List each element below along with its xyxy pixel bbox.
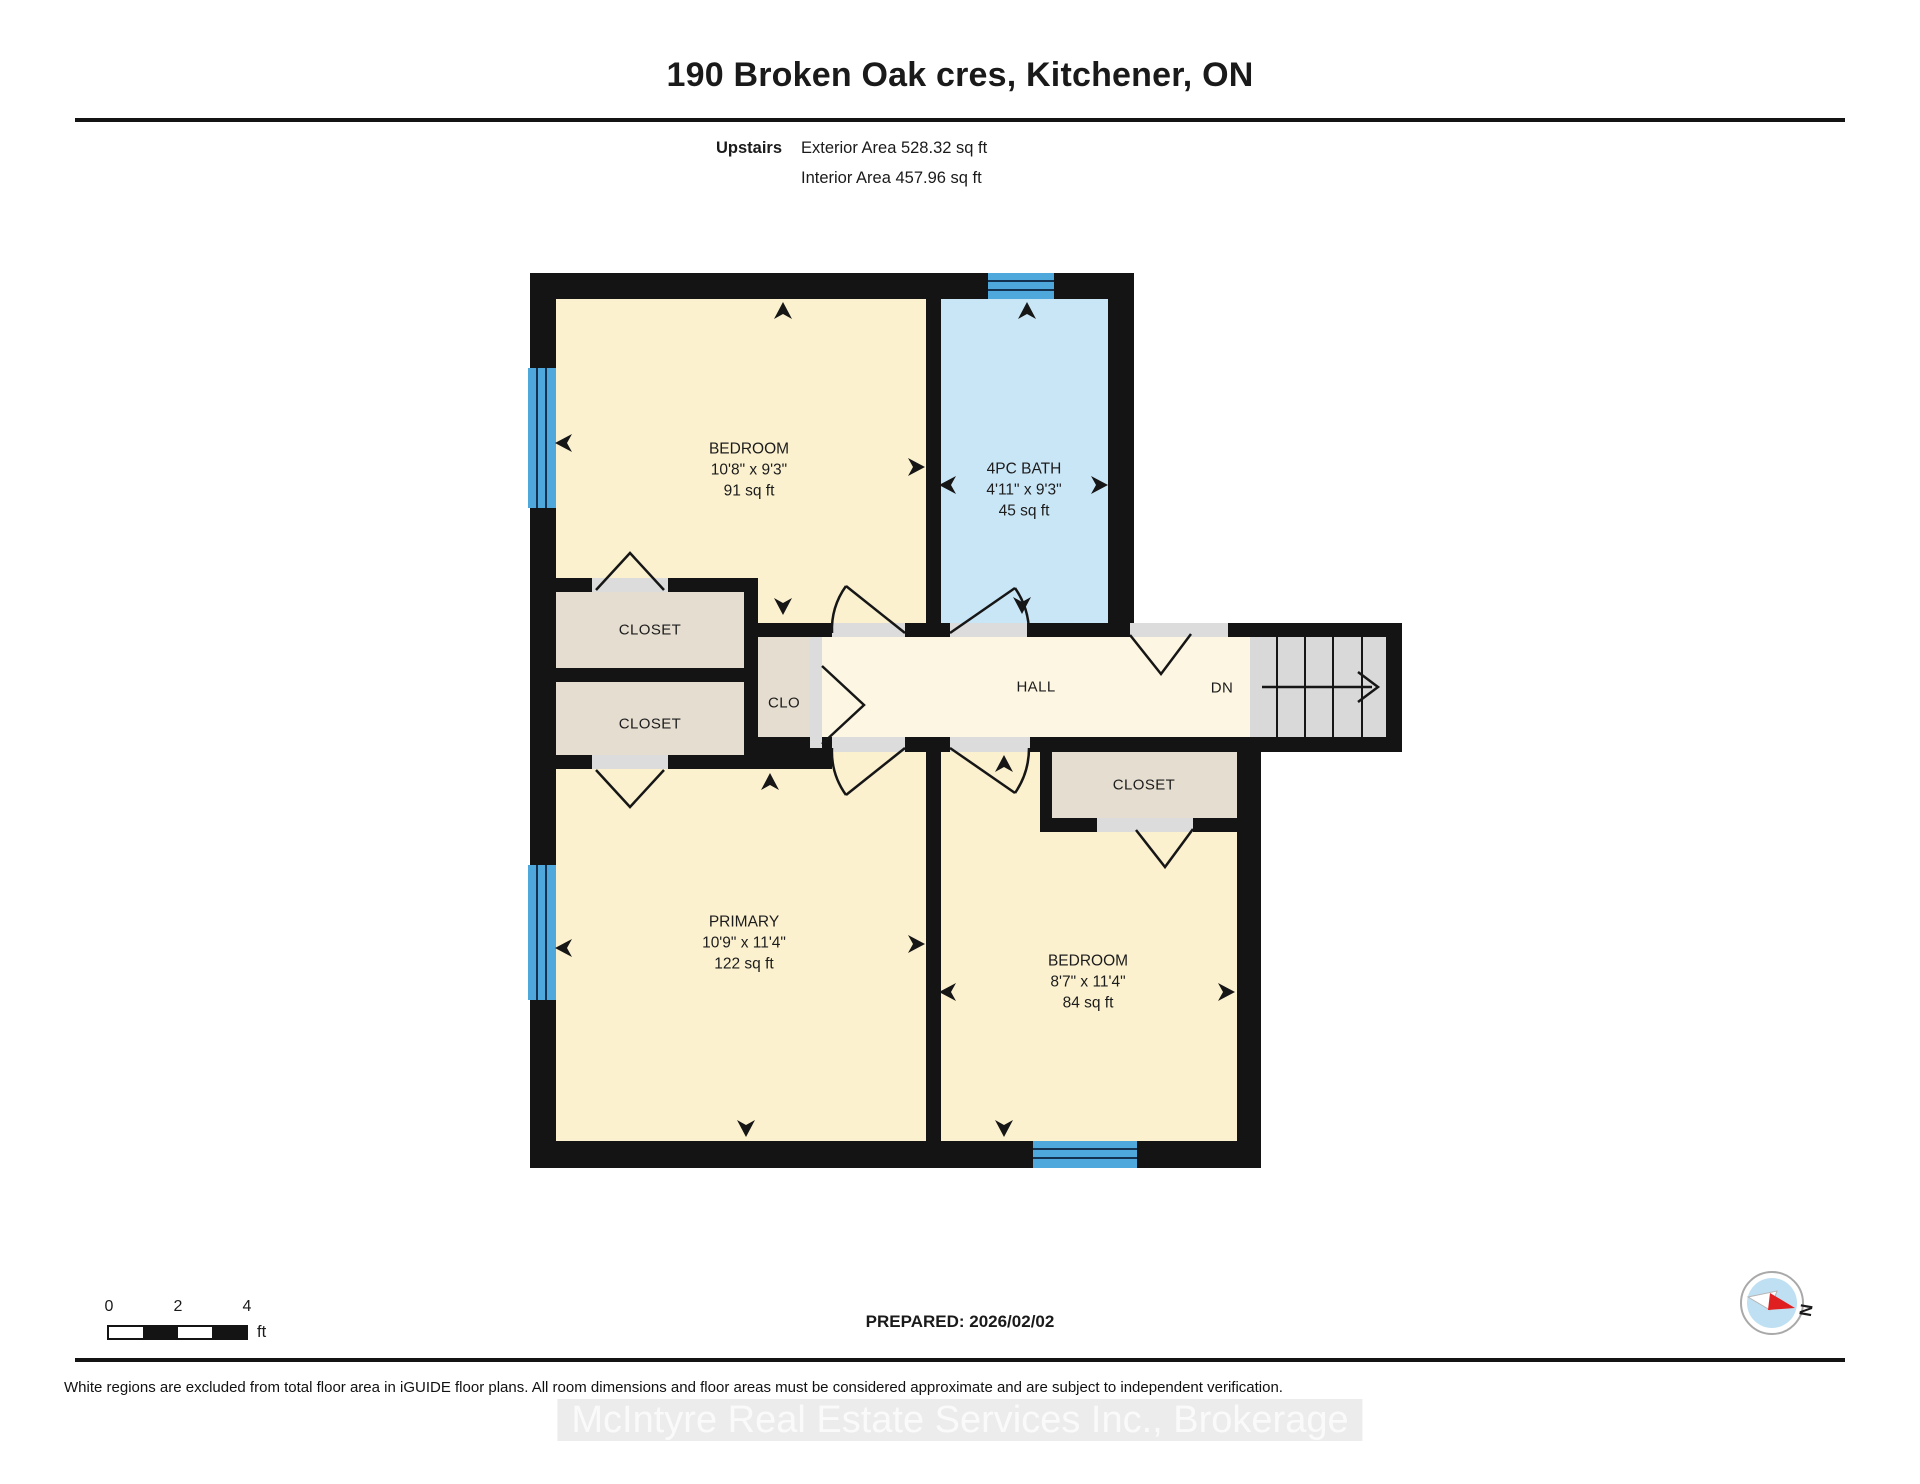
bedroom2-label: BEDROOM 8'7" x 11'4" 84 sq ft — [1048, 951, 1128, 1014]
disclaimer-text: White regions are excluded from total fl… — [64, 1379, 1283, 1396]
room-name: CLO — [768, 695, 800, 712]
door-opening — [950, 623, 1027, 637]
wall-segment — [530, 755, 592, 769]
window-primary — [528, 865, 556, 1000]
primary-label: PRIMARY 10'9" x 11'4" 122 sq ft — [702, 912, 786, 975]
door-opening — [1130, 623, 1228, 637]
window-bedroom2 — [1033, 1141, 1137, 1168]
room-name: PRIMARY — [702, 912, 786, 933]
room-name: BEDROOM — [1048, 951, 1128, 972]
clo-label: CLO — [768, 693, 800, 714]
stairs-dn-label: DN — [1211, 678, 1233, 699]
door-opening — [832, 737, 905, 752]
footer-divider — [75, 1358, 1845, 1362]
wall-segment — [1237, 737, 1261, 1168]
door-opening — [1097, 818, 1193, 832]
wall-segment — [1193, 818, 1237, 832]
room-name: HALL — [1016, 679, 1055, 696]
hall-label: HALL — [1016, 677, 1055, 698]
wall-segment — [556, 668, 744, 682]
room-name: CLOSET — [619, 622, 681, 639]
wall-segment — [926, 299, 941, 637]
bedroom1-label: BEDROOM 10'8" x 9'3" 91 sq ft — [709, 439, 789, 502]
wall-segment — [1228, 623, 1402, 637]
room-area: 84 sq ft — [1048, 993, 1128, 1014]
room-name: CLOSET — [619, 716, 681, 733]
closet-lower-label: CLOSET — [619, 714, 681, 735]
room-dimensions: 4'11" x 9'3" — [986, 480, 1061, 501]
wall-segment — [744, 748, 832, 769]
wall-segment — [744, 578, 758, 769]
window-bedroom1 — [528, 368, 556, 508]
wall-segment — [530, 578, 592, 592]
bath-label: 4PC BATH 4'11" x 9'3" 45 sq ft — [986, 459, 1061, 522]
door-opening — [832, 623, 905, 637]
interior-area: Interior Area 457.96 sq ft — [801, 169, 982, 188]
closet-upper-label: CLOSET — [619, 620, 681, 641]
room-dimensions: 10'9" x 11'4" — [702, 933, 786, 954]
wall-segment — [1030, 737, 1247, 752]
header-divider — [75, 118, 1845, 122]
room-dimensions: 10'8" x 9'3" — [709, 460, 789, 481]
wall-segment — [1027, 623, 1130, 637]
page-title: 190 Broken Oak cres, Kitchener, ON — [0, 56, 1920, 95]
wall-segment — [1108, 273, 1134, 637]
floor-label: Upstairs — [716, 139, 782, 158]
wall-segment — [1040, 818, 1097, 832]
exterior-area: Exterior Area 528.32 sq ft — [801, 139, 987, 158]
stairs-floor — [1250, 637, 1386, 737]
door-opening — [592, 578, 668, 592]
room-dimensions: 8'7" x 11'4" — [1048, 972, 1128, 993]
room-name: 4PC BATH — [986, 459, 1061, 480]
wall-segment — [1386, 623, 1402, 752]
room-name: BEDROOM — [709, 439, 789, 460]
window-bath — [988, 273, 1054, 299]
room-area: 91 sq ft — [709, 481, 789, 502]
room-name: CLOSET — [1113, 777, 1175, 794]
wall-segment — [905, 737, 950, 752]
wall-segment — [1243, 737, 1402, 752]
room-name: DN — [1211, 680, 1233, 697]
door-opening — [592, 755, 668, 769]
floor-plan-page: 190 Broken Oak cres, Kitchener, ON Upsta… — [0, 0, 1920, 1484]
wall-segment — [926, 737, 941, 1168]
room-area: 45 sq ft — [986, 501, 1061, 522]
wall-segment — [530, 1141, 1261, 1168]
wall-segment — [905, 623, 950, 637]
door-opening — [950, 737, 1030, 752]
brokerage-watermark: McIntyre Real Estate Services Inc., Brok… — [557, 1399, 1362, 1441]
room-area: 122 sq ft — [702, 954, 786, 975]
door-opening — [810, 637, 822, 748]
prepared-date: PREPARED: 2026/02/02 — [0, 1312, 1920, 1332]
closet-bedroom2-label: CLOSET — [1113, 775, 1175, 796]
